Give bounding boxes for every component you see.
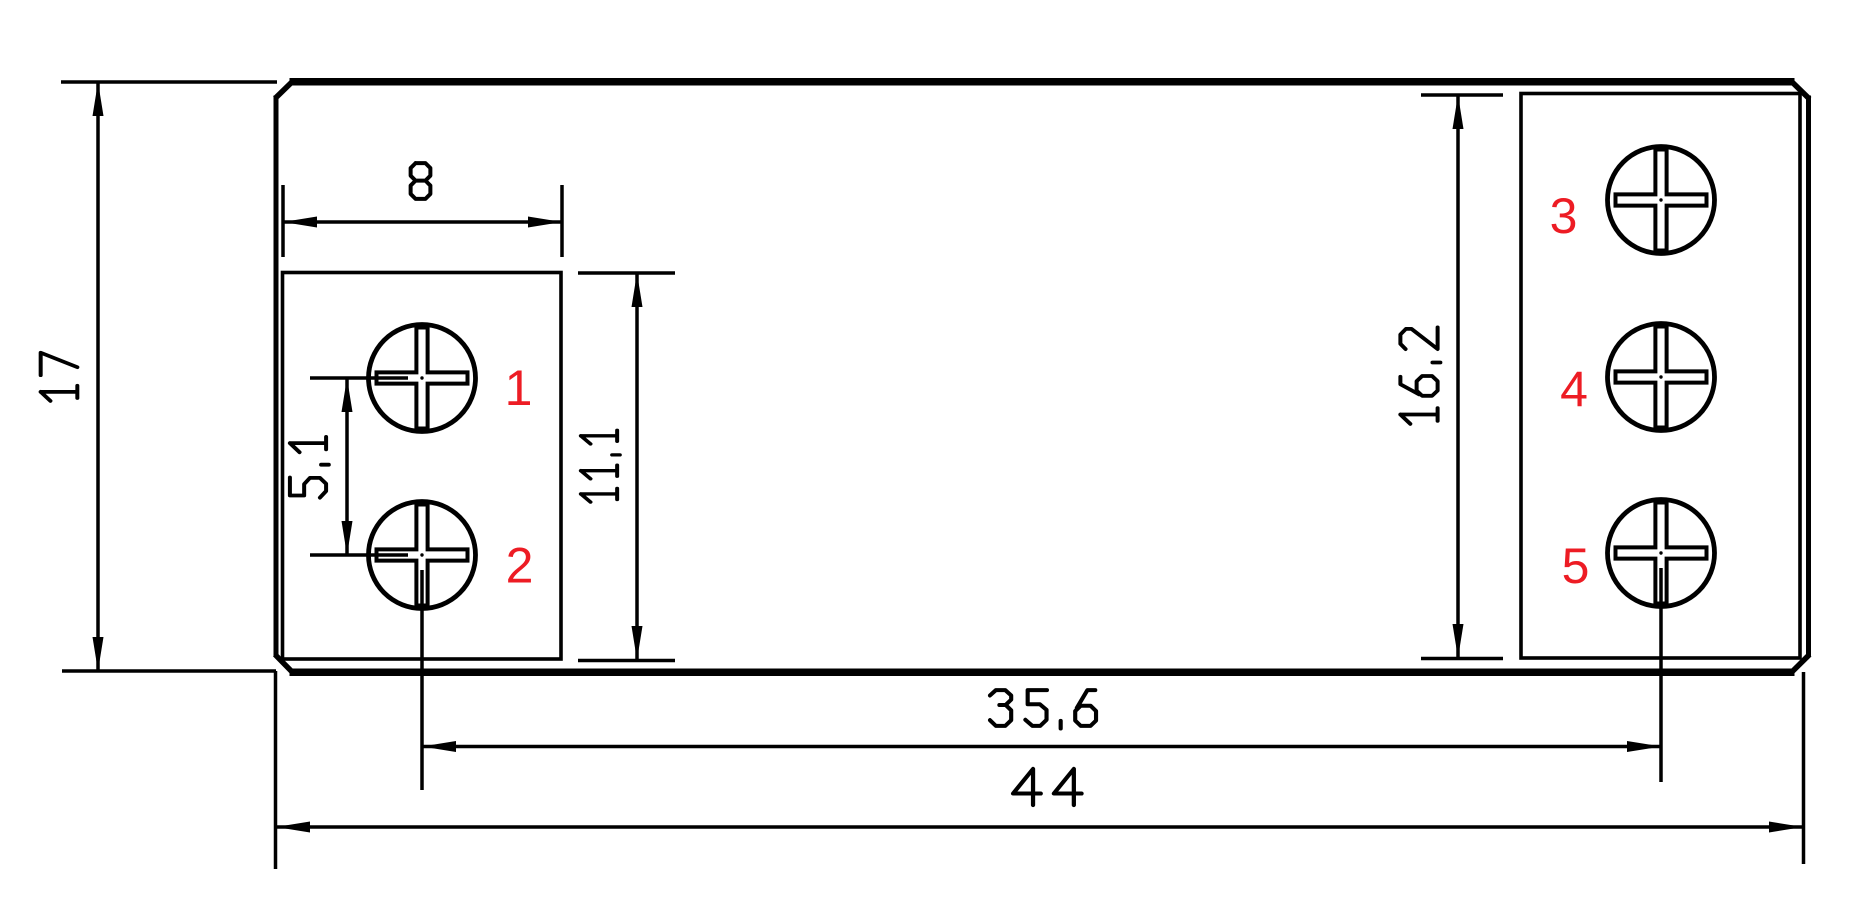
svg-text:1: 1 <box>505 360 533 416</box>
svg-text:2: 2 <box>506 538 534 594</box>
svg-text:5: 5 <box>1562 538 1590 594</box>
svg-text:4: 4 <box>1560 362 1588 418</box>
svg-text:3: 3 <box>1550 188 1578 244</box>
